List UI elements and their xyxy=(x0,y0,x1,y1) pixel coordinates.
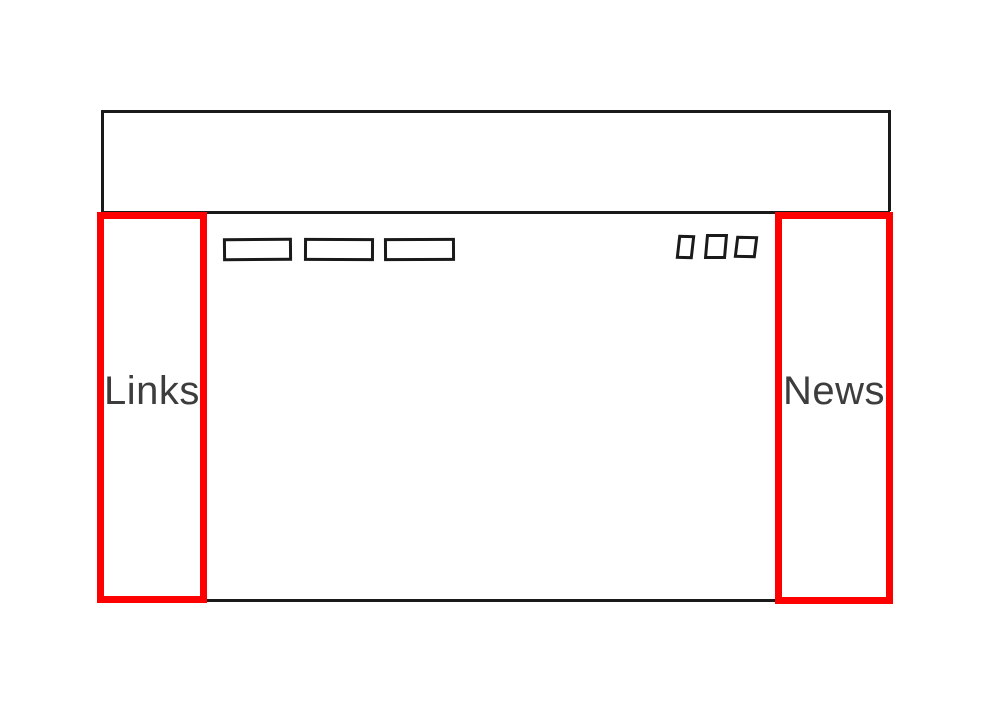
nav-button-placeholder-1 xyxy=(223,238,292,262)
header-box xyxy=(101,110,891,211)
small-button-placeholder-2 xyxy=(704,234,728,259)
left-sidebar-box: Links xyxy=(97,212,207,603)
right-sidebar-box: News xyxy=(775,212,893,604)
small-button-placeholder-1 xyxy=(676,235,696,259)
right-sidebar-label: News xyxy=(782,369,886,413)
left-sidebar-label: Links xyxy=(104,369,200,413)
wireframe-sketch: Links News xyxy=(0,0,1000,713)
nav-button-placeholder-3 xyxy=(384,238,455,261)
nav-button-placeholder-2 xyxy=(304,238,374,261)
content-box xyxy=(101,211,890,602)
small-button-placeholder-3 xyxy=(734,236,759,258)
